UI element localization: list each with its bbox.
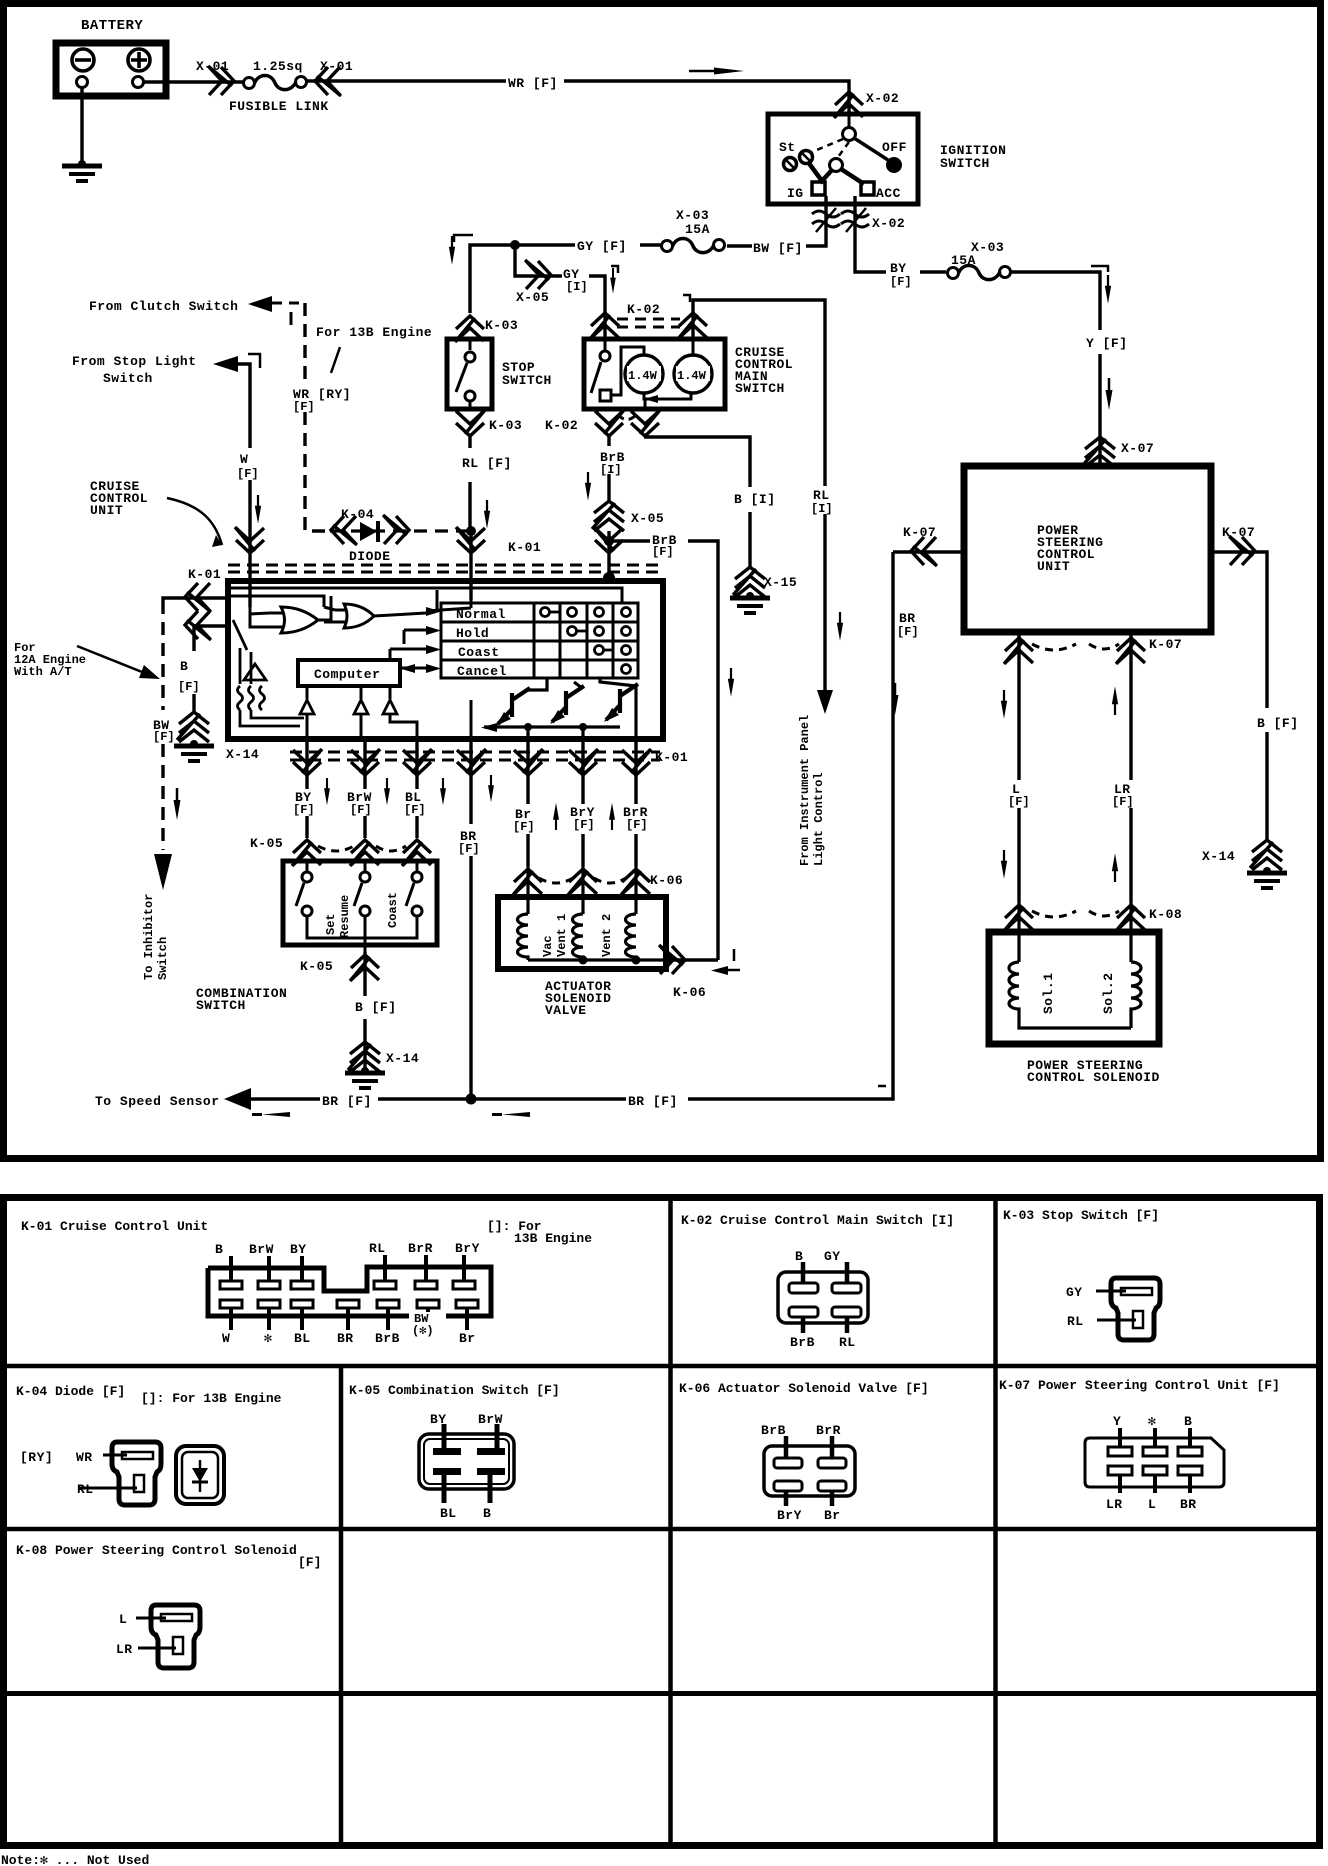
svg-text:X-14: X-14 <box>386 1051 419 1066</box>
svg-text:UNIT: UNIT <box>90 503 123 518</box>
svg-text:CONTROL SOLENOID: CONTROL SOLENOID <box>1027 1070 1160 1085</box>
svg-text:L: L <box>119 1612 127 1627</box>
svg-text:To Speed Sensor: To Speed Sensor <box>95 1094 220 1109</box>
svg-text:1.4W: 1.4W <box>628 369 658 383</box>
svg-text:For 13B Engine: For 13B Engine <box>316 325 432 340</box>
svg-text:To Inhibitor: To Inhibitor <box>142 894 156 980</box>
svg-text:LR: LR <box>1106 1497 1123 1512</box>
svg-text:SWITCH: SWITCH <box>940 156 990 171</box>
svg-text:GY [F]: GY [F] <box>577 239 627 254</box>
svg-text:B [I]: B [I] <box>734 492 776 507</box>
svg-text:Vac: Vac <box>541 935 555 957</box>
svg-text:BrB: BrB <box>375 1331 400 1346</box>
svg-text:✻: ✻ <box>264 1331 272 1346</box>
svg-text:K-06: K-06 <box>650 873 683 888</box>
svg-text:15A: 15A <box>685 222 710 237</box>
svg-text:(✻): (✻) <box>412 1324 434 1338</box>
svg-text:BL: BL <box>294 1331 311 1346</box>
svg-text:FUSIBLE LINK: FUSIBLE LINK <box>229 99 329 114</box>
svg-text:K-07 Power Steering Control Un: K-07 Power Steering Control Unit [F] <box>999 1378 1280 1393</box>
svg-text:[F]: [F] <box>1112 795 1134 809</box>
svg-text:[I]: [I] <box>811 502 833 516</box>
svg-text:BR: BR <box>337 1331 354 1346</box>
svg-text:[F]: [F] <box>237 467 259 481</box>
svg-text:K-04: K-04 <box>341 507 374 522</box>
svg-text:K-05 Combination Switch [F]: K-05 Combination Switch [F] <box>349 1383 560 1398</box>
svg-text:B [F]: B [F] <box>355 1000 397 1015</box>
svg-text:B [F]: B [F] <box>1257 716 1299 731</box>
svg-text:From Instrument Panel: From Instrument Panel <box>798 715 812 866</box>
svg-text:BrW: BrW <box>478 1412 503 1427</box>
svg-text:B: B <box>483 1506 491 1521</box>
svg-text:BrY: BrY <box>777 1508 802 1523</box>
svg-text:St: St <box>779 140 796 155</box>
svg-text:Coast: Coast <box>458 645 500 660</box>
svg-text:Normal: Normal <box>456 607 506 622</box>
svg-text:K-01: K-01 <box>508 540 541 555</box>
svg-text:B: B <box>795 1249 803 1264</box>
svg-text:DIODE: DIODE <box>349 549 391 564</box>
svg-text:BrY: BrY <box>455 1241 480 1256</box>
svg-text:Br: Br <box>824 1508 841 1523</box>
svg-text:RL: RL <box>839 1335 856 1350</box>
svg-text:Sol.1: Sol.1 <box>1041 972 1056 1014</box>
svg-text:K-01: K-01 <box>188 567 221 582</box>
svg-text:ACC: ACC <box>876 186 901 201</box>
svg-text:[F]: [F] <box>153 730 175 744</box>
svg-text:BR: BR <box>899 611 916 626</box>
svg-text:BY: BY <box>290 1242 307 1257</box>
svg-text:K-03 Stop Switch [F]: K-03 Stop Switch [F] <box>1003 1208 1159 1223</box>
svg-text:13B Engine: 13B Engine <box>514 1231 592 1246</box>
svg-text:K-03: K-03 <box>489 418 522 433</box>
svg-text:WR: WR <box>76 1450 93 1465</box>
svg-text:OFF: OFF <box>882 140 907 155</box>
svg-text:X-03: X-03 <box>676 208 709 223</box>
svg-text:L: L <box>1148 1497 1156 1512</box>
svg-text:From Stop Light: From Stop Light <box>72 354 197 369</box>
svg-text:Cancel: Cancel <box>457 664 507 679</box>
svg-text:From Clutch Switch: From Clutch Switch <box>89 299 238 314</box>
svg-text:BrB: BrB <box>790 1335 815 1350</box>
svg-text:LR: LR <box>116 1642 133 1657</box>
svg-text:15A: 15A <box>951 253 976 268</box>
svg-text:B: B <box>180 659 188 674</box>
svg-text:W: W <box>240 452 248 467</box>
svg-text:[F]: [F] <box>897 625 919 639</box>
svg-text:BrB: BrB <box>761 1423 786 1438</box>
svg-text:[F]: [F] <box>1008 795 1030 809</box>
svg-text:[F]: [F] <box>652 545 674 559</box>
svg-text:BrW: BrW <box>249 1242 274 1257</box>
svg-text:K-04 Diode [F]: K-04 Diode [F] <box>16 1384 125 1399</box>
svg-text:SWITCH: SWITCH <box>502 373 552 388</box>
svg-text:Note:✻ ... Not Used: Note:✻ ... Not Used <box>1 1853 149 1866</box>
svg-text:RL [F]: RL [F] <box>462 456 512 471</box>
svg-text:K-02: K-02 <box>545 418 578 433</box>
svg-text:RL: RL <box>1067 1314 1084 1329</box>
svg-text:Y [F]: Y [F] <box>1086 336 1128 351</box>
svg-text:[F]: [F] <box>404 803 426 817</box>
svg-text:[F]: [F] <box>298 1555 321 1570</box>
svg-text:K-05: K-05 <box>300 959 333 974</box>
svg-text:K-01 Cruise Control Unit: K-01 Cruise Control Unit <box>21 1219 208 1234</box>
svg-text:K-08: K-08 <box>1149 907 1182 922</box>
svg-text:X-14: X-14 <box>1202 849 1235 864</box>
svg-text:Br: Br <box>459 1331 476 1346</box>
svg-text:[F]: [F] <box>178 680 200 694</box>
svg-text:SWITCH: SWITCH <box>196 998 246 1013</box>
svg-text:RL: RL <box>369 1241 386 1256</box>
svg-text:WR [F]: WR [F] <box>508 76 558 91</box>
svg-text:BY: BY <box>430 1412 447 1427</box>
svg-text:UNIT: UNIT <box>1037 559 1070 574</box>
svg-text:K-07: K-07 <box>903 525 936 540</box>
svg-text:[F]: [F] <box>293 400 315 414</box>
svg-text:With A/T: With A/T <box>14 665 72 679</box>
svg-text:[I]: [I] <box>566 280 588 294</box>
svg-text:K-07: K-07 <box>1149 637 1182 652</box>
svg-text:BrR: BrR <box>408 1241 433 1256</box>
svg-text:K-06: K-06 <box>673 985 706 1000</box>
svg-text:BR: BR <box>1180 1497 1197 1512</box>
svg-text:1.25sq: 1.25sq <box>253 59 303 74</box>
svg-text:Hold: Hold <box>456 626 489 641</box>
svg-text:K-08 Power Steering Control So: K-08 Power Steering Control Solenoid <box>16 1543 297 1558</box>
svg-text:X-03: X-03 <box>971 240 1004 255</box>
svg-text:K-06 Actuator Solenoid Valve [: K-06 Actuator Solenoid Valve [F] <box>679 1381 929 1396</box>
svg-text:Switch: Switch <box>103 371 153 386</box>
svg-text:X-15: X-15 <box>764 575 797 590</box>
svg-text:X-05: X-05 <box>631 511 664 526</box>
svg-text:X-02: X-02 <box>866 91 899 106</box>
svg-text:BY: BY <box>890 261 907 276</box>
svg-text:K-02 Cruise Control Main Switc: K-02 Cruise Control Main Switch [I] <box>681 1213 954 1228</box>
svg-text:VALVE: VALVE <box>545 1003 587 1018</box>
svg-text:1.4W: 1.4W <box>677 369 707 383</box>
svg-text:[F]: [F] <box>350 803 372 817</box>
svg-text:BATTERY: BATTERY <box>81 18 143 34</box>
svg-text:Set: Set <box>324 913 338 935</box>
svg-text:Sol.2: Sol.2 <box>1101 972 1116 1014</box>
svg-text:SWITCH: SWITCH <box>735 381 785 396</box>
svg-text:B: B <box>1184 1414 1192 1429</box>
svg-text:[F]: [F] <box>626 818 648 832</box>
svg-text:GY: GY <box>1066 1285 1083 1300</box>
svg-text:✻: ✻ <box>1148 1414 1156 1429</box>
svg-text:[I]: [I] <box>600 463 622 477</box>
svg-text:Resume: Resume <box>338 895 352 938</box>
svg-text:[F]: [F] <box>458 842 480 856</box>
svg-text:K-07: K-07 <box>1222 525 1255 540</box>
svg-text:K-02: K-02 <box>627 302 660 317</box>
svg-text:X-02: X-02 <box>872 216 905 231</box>
svg-text:BL: BL <box>440 1506 457 1521</box>
svg-text:BW [F]: BW [F] <box>753 241 803 256</box>
svg-text:X-14: X-14 <box>226 747 259 762</box>
svg-text:Switch: Switch <box>156 937 170 980</box>
svg-text:Vent 2: Vent 2 <box>600 914 614 957</box>
svg-text:[F]: [F] <box>573 818 595 832</box>
svg-text:W: W <box>222 1331 230 1346</box>
svg-text:X-05: X-05 <box>516 290 549 305</box>
svg-text:Computer: Computer <box>314 667 380 682</box>
svg-text:[F]: [F] <box>293 803 315 817</box>
svg-text:[F]: [F] <box>890 275 912 289</box>
svg-text:[RY]: [RY] <box>20 1450 53 1465</box>
svg-text:BrR: BrR <box>816 1423 841 1438</box>
svg-text:GY: GY <box>824 1249 841 1264</box>
svg-text:K-01: K-01 <box>655 750 688 765</box>
svg-text:BR [F]: BR [F] <box>628 1094 678 1109</box>
svg-text:K-03: K-03 <box>485 318 518 333</box>
svg-text:B: B <box>215 1242 223 1257</box>
svg-text:[F]: [F] <box>513 820 535 834</box>
svg-text:RL: RL <box>813 488 830 503</box>
svg-text:K-05: K-05 <box>250 836 283 851</box>
svg-text:[]: For 13B Engine: []: For 13B Engine <box>141 1391 282 1406</box>
svg-text:Vent 1: Vent 1 <box>555 914 569 957</box>
svg-text:RL: RL <box>77 1482 94 1497</box>
svg-text:Y: Y <box>1113 1414 1121 1429</box>
svg-text:Coast: Coast <box>386 892 400 928</box>
svg-text:BR [F]: BR [F] <box>322 1094 372 1109</box>
svg-text:X-07: X-07 <box>1121 441 1154 456</box>
svg-text:Light Control: Light Control <box>812 772 826 866</box>
svg-text:IG: IG <box>787 186 804 201</box>
